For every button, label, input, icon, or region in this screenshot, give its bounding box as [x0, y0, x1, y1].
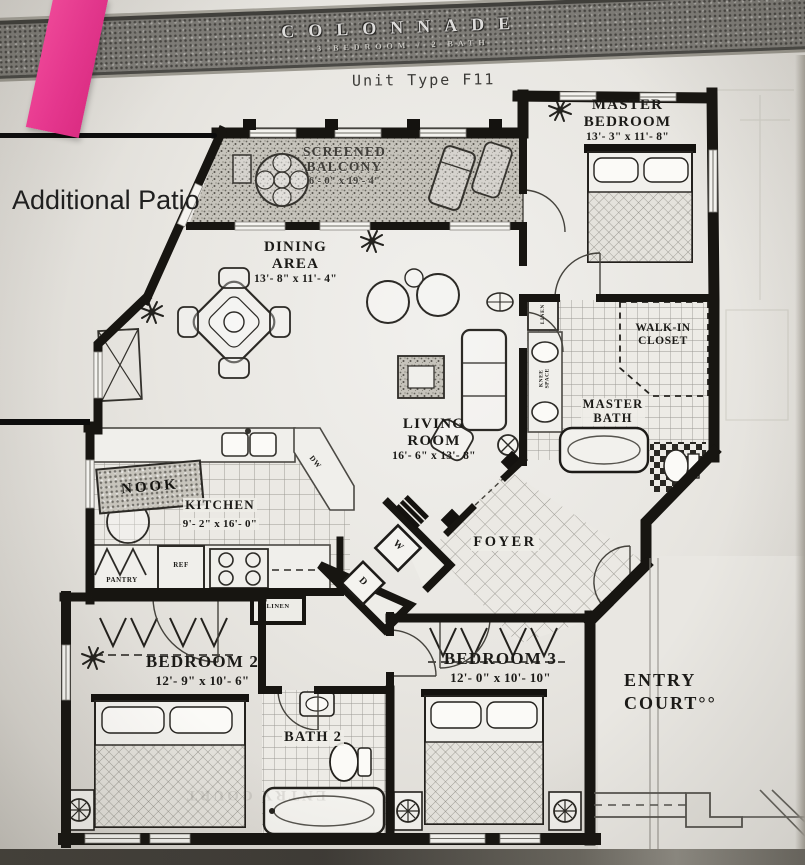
label-master-bedroom: MASTER BEDROOM 13'- 3" x 11'- 8" [545, 97, 710, 143]
photo-bottom-edge [0, 849, 805, 865]
label-bedroom-3: BEDROOM 3 12'- 0" x 10'- 10" [398, 650, 603, 686]
vanity-sink-2 [532, 402, 558, 422]
label-linen-hall: LINEN [254, 603, 302, 610]
patio-annotation-line-top [0, 133, 217, 138]
label-kitchen: KITCHEN 9'- 2" x 16'- 0" [160, 496, 280, 532]
paper-right-edge [795, 55, 805, 855]
label-knee-space: KNEE SPACE [539, 361, 552, 395]
label-refrigerator: REF [160, 561, 202, 569]
label-living-room: LIVING ROOM 16'- 6" x 13'- 8" [380, 416, 488, 462]
vanity-sink-1 [532, 342, 558, 362]
unit-type-label: Unit Type F11 [352, 70, 496, 90]
label-entry-court: ENTRY COURT°° [624, 669, 769, 716]
patio-annotation-text: Additional Patio [12, 185, 200, 216]
label-pantry: PANTRY [96, 576, 148, 584]
patio-annotation-line-bottom [0, 419, 90, 425]
label-walk-in-closet: WALK-IN CLOSET [623, 322, 703, 347]
bleed-through-text: ENTRY COURT [150, 786, 360, 803]
photographed-floor-plan-page: COLONNADE 3 BEDROOM / 2 BATH Unit Type F… [0, 0, 805, 865]
label-master-bath: MASTER BATH [565, 398, 661, 427]
label-foyer: FOYER [462, 533, 548, 551]
label-screened-balcony: SCREENED BALCONY 6'- 0" x 19'- 4" [262, 145, 427, 187]
master-tub [560, 428, 648, 472]
label-bedroom-2: BEDROOM 2 12'- 9" x 10'- 6" [100, 653, 305, 689]
bath2-toilet [330, 743, 358, 781]
label-dining-area: DINING AREA 13'- 8" x 11'- 4" [238, 239, 353, 285]
label-bath-2: BATH 2 [267, 728, 359, 746]
label-linen-bath: LINEN [540, 299, 546, 329]
